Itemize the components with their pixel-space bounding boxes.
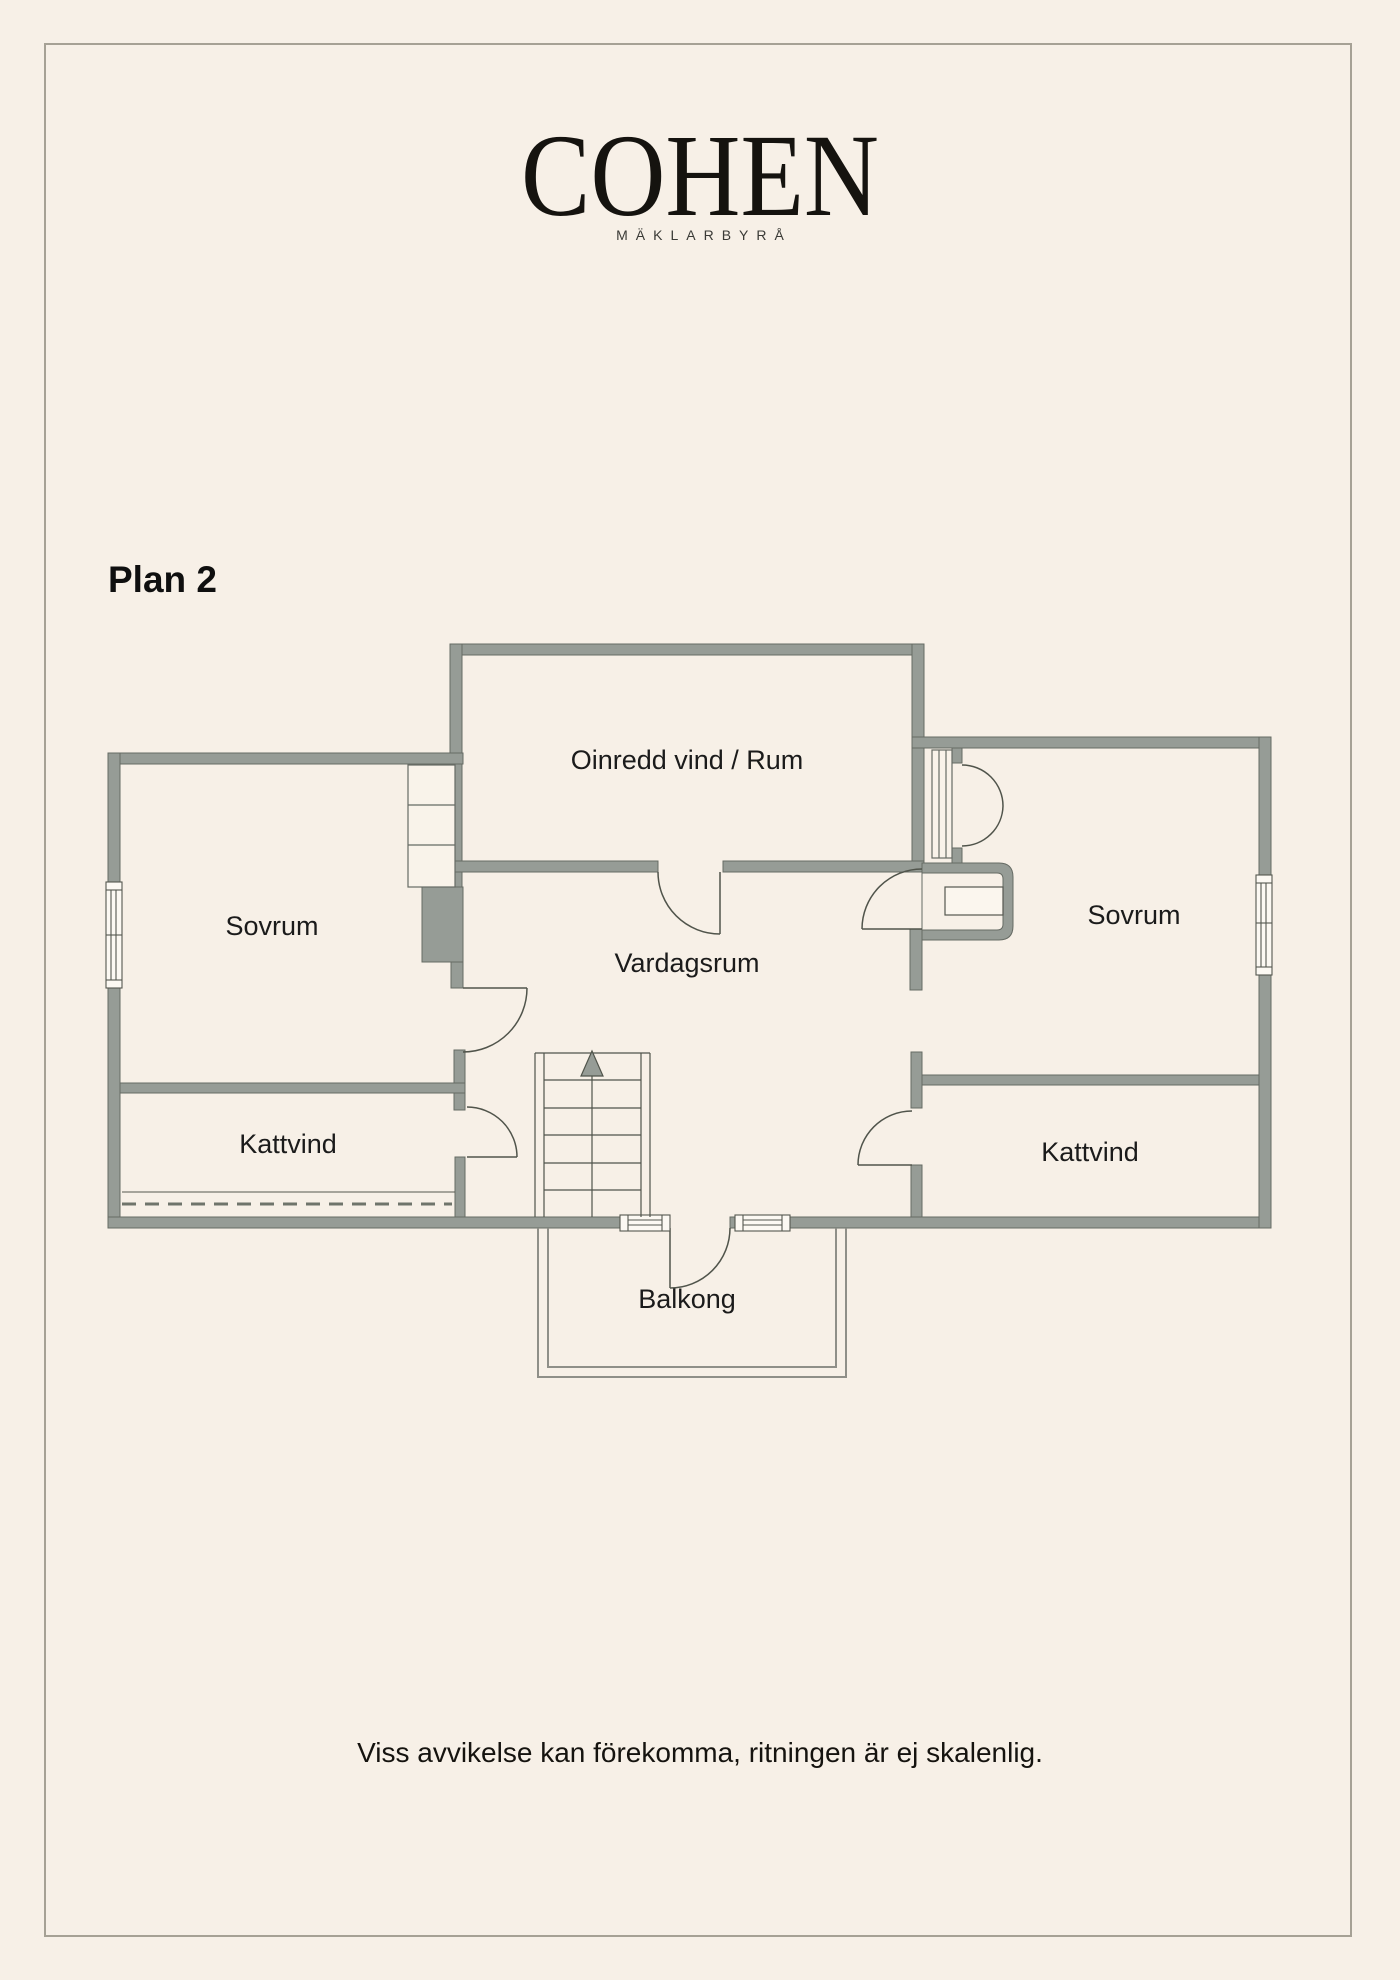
room-label-crawlspace-right: Kattvind <box>1041 1137 1139 1167</box>
brand-logo: COHEN <box>521 110 879 241</box>
window-right <box>1256 875 1272 975</box>
door-balcony <box>670 1228 730 1288</box>
door-crawlspace-right <box>858 1111 912 1165</box>
chimney-block-left <box>422 887 463 962</box>
chimney-flue <box>945 887 1003 915</box>
closet-left <box>408 765 455 887</box>
floor-plan-figure: COHEN MÄKLARBYRÅ Plan 2 <box>0 0 1400 1980</box>
wall-attic-right <box>912 644 924 872</box>
wall-divider-right <box>922 1075 1259 1085</box>
wall-hall-right-bottom <box>911 1165 922 1217</box>
wall-closet-stub-bottom <box>952 848 962 863</box>
room-label-living-room: Vardagsrum <box>614 948 759 978</box>
brand-tagline: MÄKLARBYRÅ <box>616 227 792 243</box>
window-bottom-right <box>735 1215 790 1231</box>
wall-outer-bottom-right <box>730 1217 1271 1228</box>
door-attic <box>658 872 720 934</box>
stair-up-arrow-icon <box>581 1051 603 1076</box>
closet-right <box>932 750 952 858</box>
wall-spine-below-chimney <box>451 962 463 988</box>
wall-outer-right <box>1259 737 1271 1228</box>
wall-hall-right-stub <box>911 1052 922 1108</box>
window-left <box>106 882 122 988</box>
wall-hall-right-upper <box>910 929 922 990</box>
room-label-attic: Oinredd vind / Rum <box>571 745 804 775</box>
door-bedroom-left <box>463 988 527 1052</box>
door-crawlspace-left <box>467 1107 517 1157</box>
staircase <box>535 1051 650 1217</box>
wall-spine-stub <box>454 1050 465 1110</box>
page-title: Plan 2 <box>108 559 217 600</box>
room-label-crawlspace-left: Kattvind <box>239 1129 337 1159</box>
disclaimer-text: Viss avvikelse kan förekomma, ritningen … <box>357 1737 1043 1768</box>
wall-spine-bottom <box>455 1157 465 1217</box>
low-ceiling-lines <box>122 1192 455 1204</box>
floorplan-page: COHEN MÄKLARBYRÅ Plan 2 <box>0 0 1400 1980</box>
door-living-room <box>862 869 922 929</box>
page-border-frame <box>45 44 1351 1936</box>
wall-left-section-top <box>108 753 463 764</box>
wall-attic-bottom-right <box>723 861 924 872</box>
door-closet-double <box>962 765 1003 846</box>
room-label-bedroom-left: Sovrum <box>225 911 318 941</box>
wall-outer-left <box>108 753 120 1228</box>
wall-divider-left <box>120 1083 465 1093</box>
wall-right-section-top <box>912 737 1271 748</box>
wall-outer-bottom-left <box>108 1217 670 1228</box>
wall-closet-stub-top <box>952 748 962 763</box>
wall-attic-bottom-left <box>450 861 658 872</box>
wall-attic-top <box>450 644 924 655</box>
room-label-bedroom-right: Sovrum <box>1087 900 1180 930</box>
window-bottom-left <box>620 1215 670 1231</box>
room-label-balcony: Balkong <box>638 1284 736 1314</box>
